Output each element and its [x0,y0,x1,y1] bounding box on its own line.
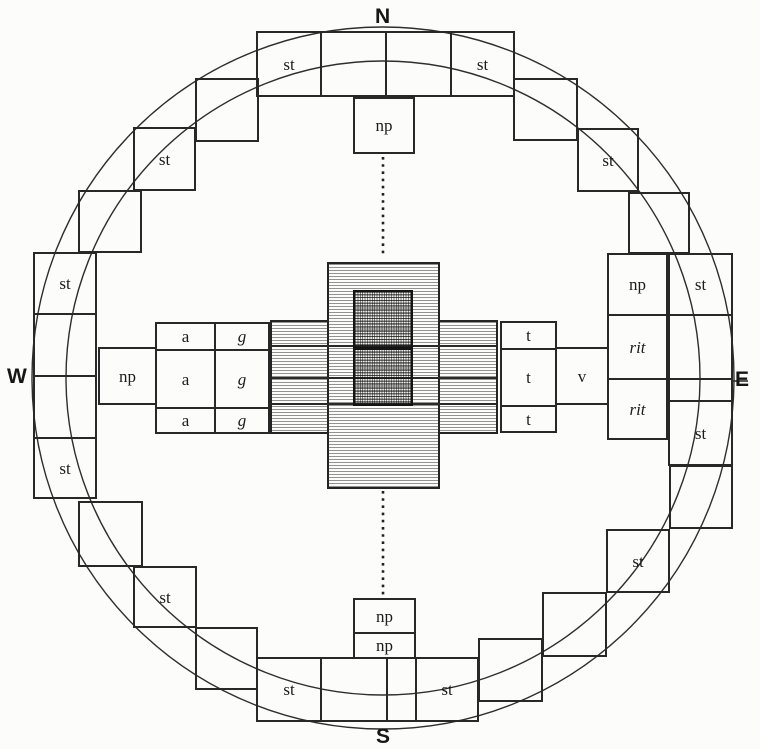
t-cell: t [502,323,555,348]
g-cell: g [214,407,268,432]
se-stair-cell [478,638,543,702]
t-cell: t [502,348,555,405]
rit-cell: rit [609,314,666,378]
mandala-diagram: N E S W st st np st np rit rit st st st … [0,0,760,749]
ring-cell [386,659,415,720]
sw-stair-cell [78,501,143,567]
ring-cell [320,659,386,720]
south-gate-row: st st [256,657,479,722]
south-np-gate: np [355,632,414,657]
nw-stair-cell: st [133,127,196,191]
nw-stair-cell [195,78,259,142]
a-cell: a [157,349,214,407]
south-np-gate-block: np np [353,598,416,659]
g-cell: g [214,324,268,349]
east-st-column: st st [668,253,733,466]
ne-stair-cell [628,192,690,254]
sw-stair-cell [195,627,258,690]
ring-cell [35,313,95,375]
ne-stair-cell [513,78,578,141]
west-np-gate: np [98,347,157,405]
ring-cell: st [450,33,513,95]
cardinal-west: W [7,366,27,387]
west-arm-grid: a g a g a g [155,322,270,434]
north-gate-row: st st [256,31,515,97]
east-rit-column: np rit rit [607,253,668,440]
cardinal-north: N [375,6,390,27]
se-stair-cell [669,465,733,529]
sanctum-divider [354,347,412,350]
se-stair-cell: st [606,529,670,593]
g-cell: g [214,349,268,407]
ring-cell: st [670,255,731,314]
ring-cell [385,33,450,95]
sw-stair-cell: st [133,566,197,628]
cardinal-east: E [735,369,749,390]
v-cell: v [555,347,609,405]
a-cell: a [157,407,214,432]
ring-cell: st [670,400,731,464]
se-stair-cell [542,592,607,657]
ring-cell: st [35,437,95,497]
ring-cell [670,314,731,378]
a-cell: a [157,324,214,349]
ring-cell [670,378,731,400]
east-np-gate: np [609,255,666,314]
ring-cell: st [415,659,477,720]
east-arm-t-column: t t t [500,321,557,433]
cardinal-south: S [376,726,390,747]
ring-cell [35,375,95,437]
north-np-gate: np [353,97,415,154]
ring-cell: st [258,659,320,720]
sanctum-crosshatch-rect [353,290,413,406]
nw-stair-cell [78,190,142,253]
ne-stair-cell: st [577,128,639,192]
rit-cell: rit [609,378,666,438]
ring-cell: st [258,33,320,95]
ring-cell [320,33,385,95]
west-st-column: st st [33,252,97,499]
south-np-gate: np [355,600,414,632]
t-cell: t [502,405,555,431]
ring-cell: st [35,254,95,313]
